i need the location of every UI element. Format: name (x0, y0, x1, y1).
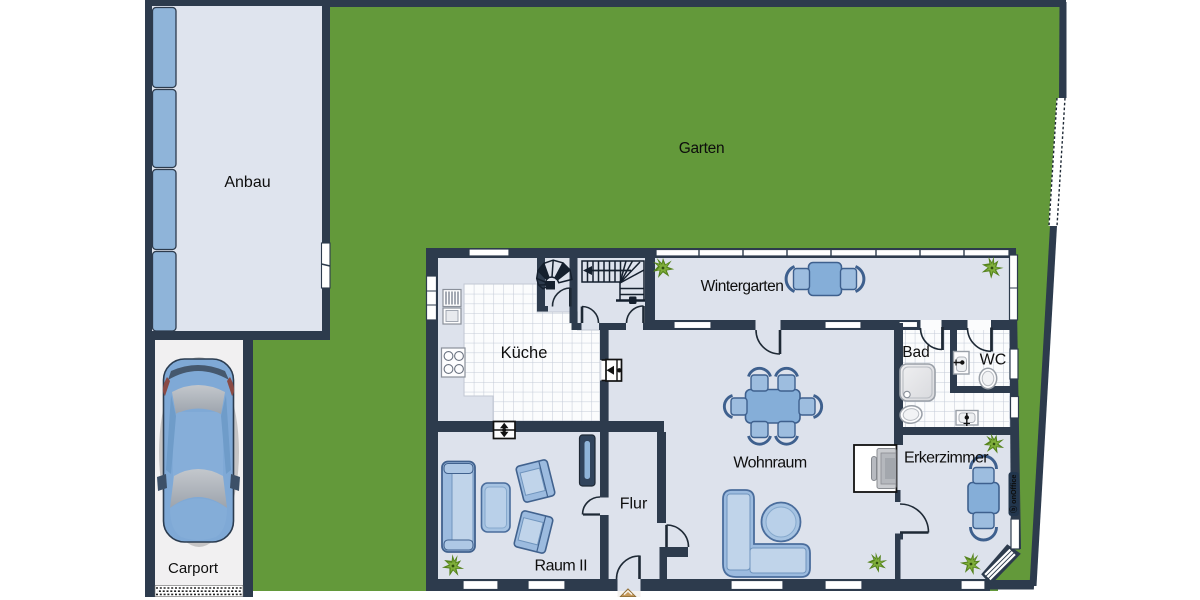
svg-text:Garten: Garten (679, 140, 725, 157)
svg-text:Erkerzimmer: Erkerzimmer (904, 450, 989, 467)
svg-text:WC: WC (980, 352, 1007, 369)
svg-text:Wintergarten: Wintergarten (701, 278, 784, 295)
svg-text:Küche: Küche (501, 344, 548, 362)
svg-text:ⓑ onOffice: ⓑ onOffice (1009, 475, 1018, 513)
svg-text:Carport: Carport (168, 560, 219, 577)
svg-text:Flur: Flur (620, 496, 648, 513)
svg-text:Anbau: Anbau (224, 174, 270, 191)
svg-text:Wohnraum: Wohnraum (733, 455, 806, 472)
svg-text:Bad: Bad (902, 344, 930, 361)
svg-text:Raum II: Raum II (535, 558, 588, 575)
